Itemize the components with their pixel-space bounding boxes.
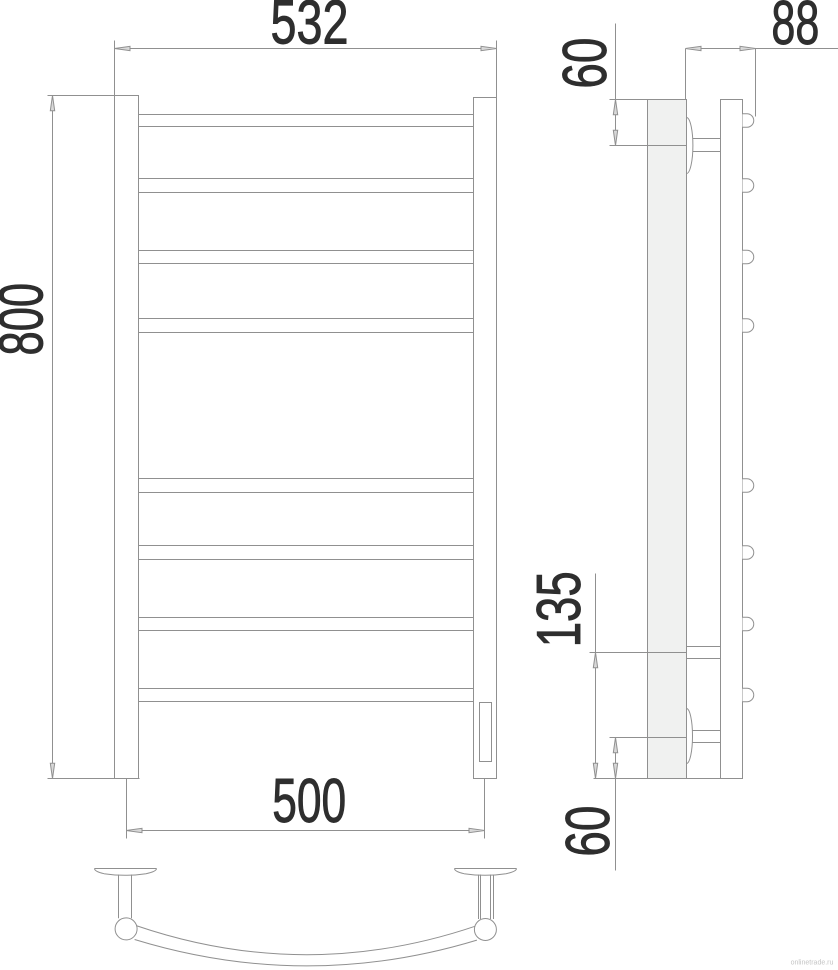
svg-text:onlinetrade.ru: onlinetrade.ru	[791, 960, 834, 967]
svg-text:500: 500	[272, 767, 346, 836]
svg-text:532: 532	[271, 0, 349, 58]
svg-text:135: 135	[525, 571, 594, 647]
svg-text:800: 800	[0, 283, 57, 356]
svg-text:88: 88	[771, 0, 819, 58]
svg-text:60: 60	[551, 38, 620, 89]
svg-text:60: 60	[554, 806, 623, 857]
